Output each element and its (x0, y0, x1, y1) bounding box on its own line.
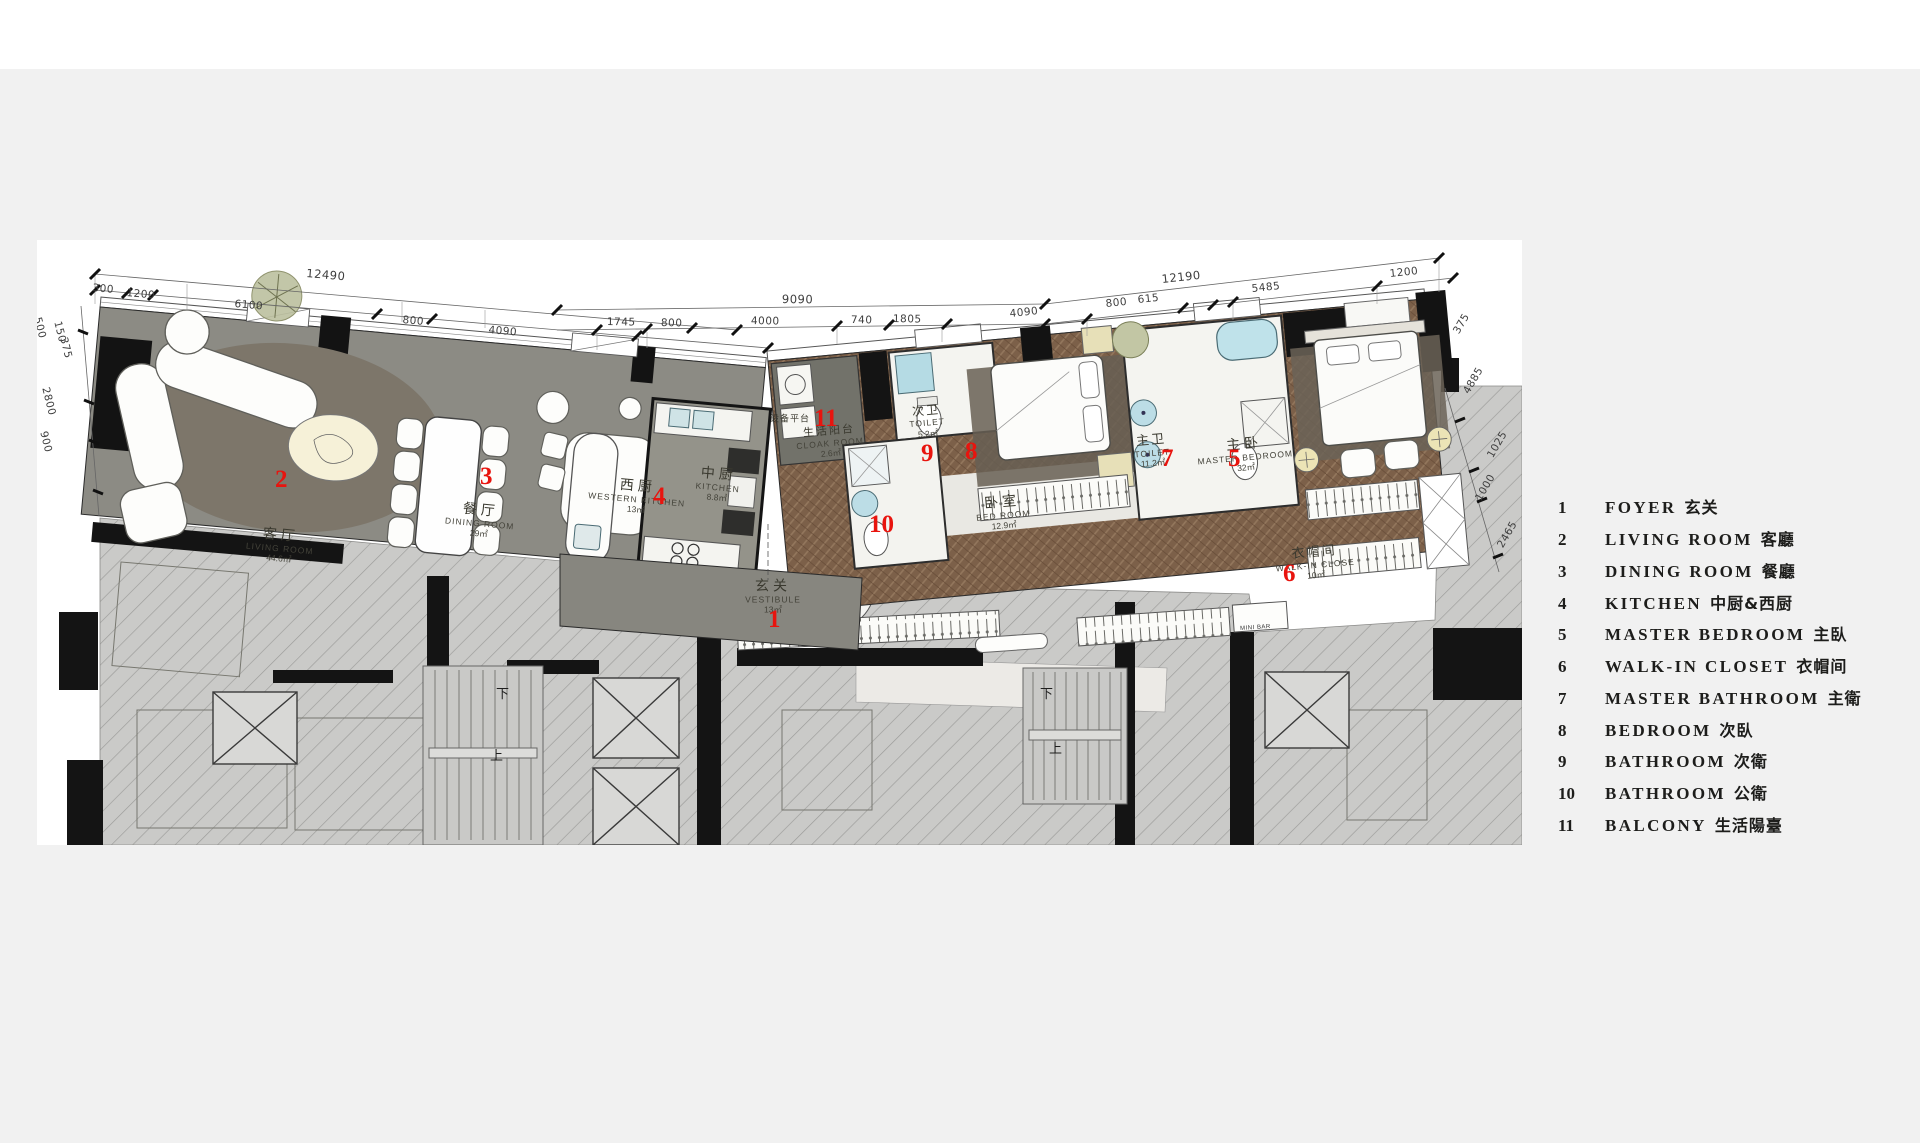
stair-up-label: 上 (490, 745, 503, 764)
room-label-dining: 餐厅 DINING ROOM 29㎡ (444, 498, 517, 541)
presentation-page: { "page": {"background":"#f1f1f1","top_s… (0, 0, 1920, 1143)
dim-label: 9090 (782, 292, 813, 306)
legend-item-dining: 3DINING ROOM餐廳 (1558, 558, 1796, 582)
marker-11: 11 (814, 405, 838, 433)
right-wing (766, 280, 1471, 629)
floorplan-sheet: 12490 300 1200 6100 800 4090 9090 1745 8… (37, 240, 1522, 845)
room-label-bathroom2: 次卫 TOILET 5.2㎡ (908, 402, 947, 440)
legend-item-bathroom2: 9BATHROOM次衛 (1558, 748, 1768, 772)
marker-8: 8 (965, 438, 978, 466)
room-label-equipment: 设备平台 (770, 414, 810, 425)
legend-item-bedroom: 8BEDROOM次臥 (1558, 717, 1754, 741)
legend-item-walk-in-closet: 6WALK-IN CLOSET衣帽间 (1558, 653, 1847, 677)
marker-9: 9 (921, 440, 934, 468)
room-label-kitchen: 中厨 KITCHEN 8.8㎡ (694, 464, 741, 505)
dim-label: 300 (92, 282, 115, 296)
dim-label: 6100 (234, 298, 264, 312)
dim-label: 4090 (488, 324, 518, 338)
dim-label: 740 (851, 314, 873, 326)
legend-item-bathroom-public: 10BATHROOM公衛 (1558, 780, 1768, 804)
marker-4: 4 (653, 483, 666, 511)
dim-label: 1805 (893, 313, 922, 325)
marker-6: 6 (1283, 560, 1296, 588)
marker-2: 2 (275, 466, 288, 494)
marker-5: 5 (1228, 445, 1241, 473)
dim-label: 800 (1105, 296, 1128, 310)
dim-label: 4000 (751, 315, 780, 327)
marker-10: 10 (869, 511, 894, 539)
legend-item-living: 2LIVING ROOM客廳 (1558, 526, 1795, 550)
dim-label: 800 (661, 317, 683, 329)
legend-item-master-bedroom: 5MASTER BEDROOM主臥 (1558, 621, 1847, 645)
legend-item-kitchen: 4KITCHEN中厨&西厨 (1558, 590, 1793, 614)
stair-up-label: 上 (1049, 738, 1062, 757)
dim-label: 1200 (126, 287, 156, 301)
marker-7: 7 (1161, 445, 1174, 473)
stair-down-label: 下 (1040, 683, 1053, 702)
dim-label: 615 (1137, 292, 1160, 306)
legend-item-foyer: 1FOYER玄关 (1558, 494, 1719, 518)
legend-item-balcony: 11BALCONY生活陽臺 (1558, 812, 1783, 836)
dim-label: 1745 (607, 316, 636, 328)
legend-item-master-bathroom: 7MASTER BATHROOM主衛 (1558, 685, 1862, 709)
room-label-living: 客厅 LIVING ROOM 44.6㎡ (245, 524, 316, 567)
stair-down-label: 下 (496, 683, 509, 702)
marker-1: 1 (768, 606, 781, 634)
marker-3: 3 (480, 463, 493, 491)
master-bathroom (1111, 308, 1299, 521)
top-white-strip (0, 0, 1920, 69)
room-label-bedroom: 卧室 BED ROOM 12.9㎡ (974, 491, 1031, 533)
dim-label: 800 (402, 314, 425, 328)
